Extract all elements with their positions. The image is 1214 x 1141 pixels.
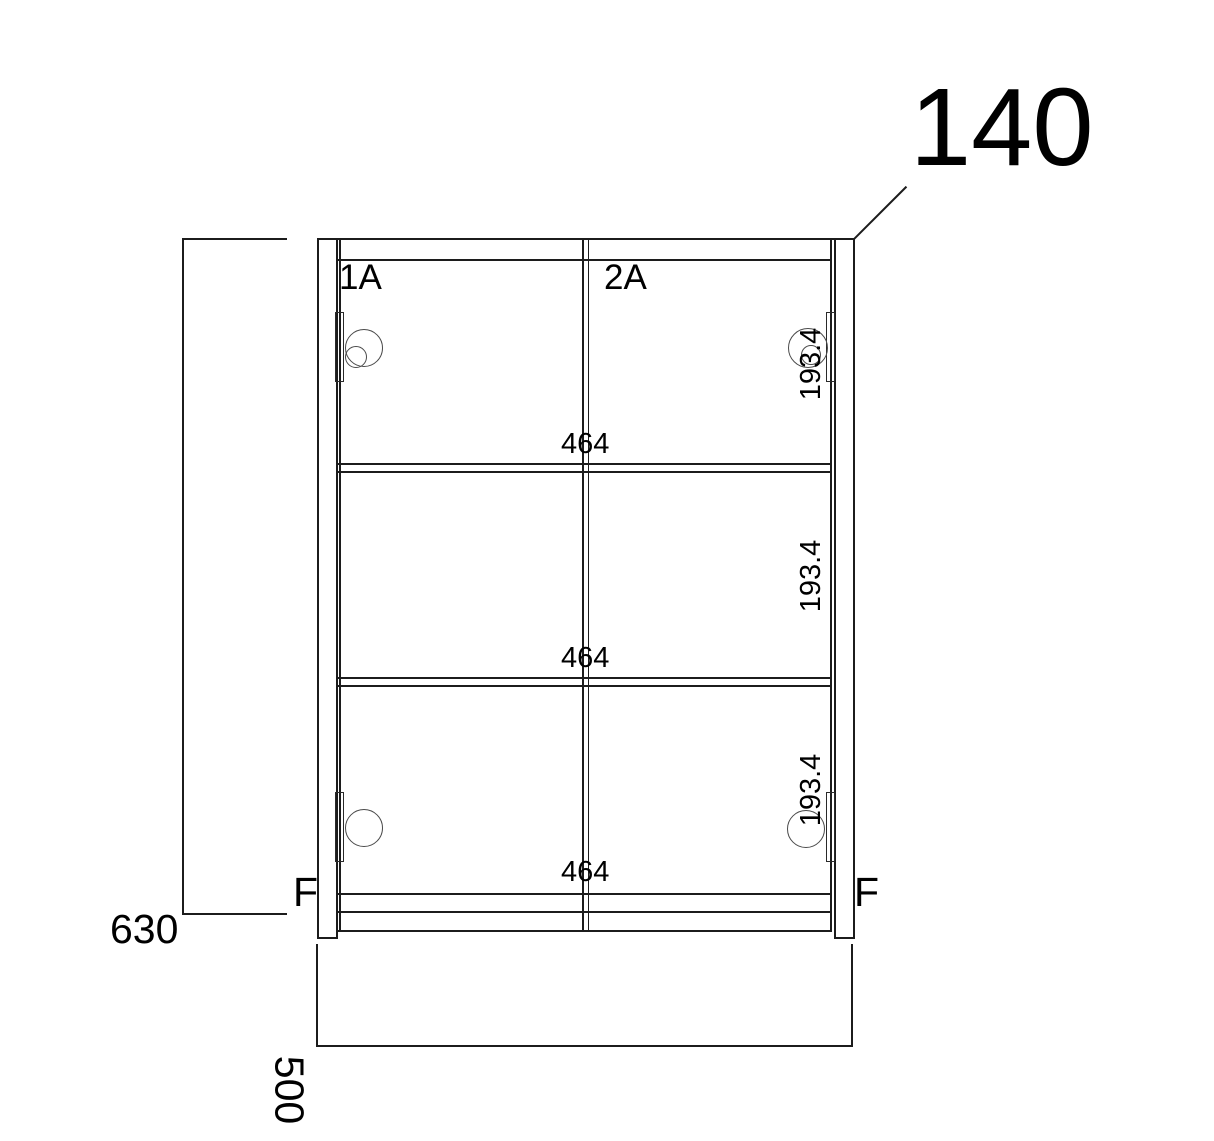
inner-width-dim-bottom: 464 bbox=[561, 857, 607, 887]
fitting-label-left: F bbox=[293, 871, 318, 914]
inner-width-dim-middle: 464 bbox=[561, 643, 607, 673]
fitting-label-right: F bbox=[854, 871, 879, 914]
depth-dim-label: 500 bbox=[267, 1056, 310, 1124]
bottom-board-lower-line bbox=[338, 911, 830, 913]
section-height-dim-middle: 193.4 bbox=[796, 540, 826, 613]
door-label-1a: 1A bbox=[339, 260, 382, 297]
bottom-board-top-line bbox=[338, 893, 830, 895]
center-divider-line-left bbox=[582, 238, 584, 932]
hinge-cup-circle-top-left-small bbox=[345, 346, 367, 368]
center-divider-line-right bbox=[588, 238, 590, 932]
top-rail-inner-line bbox=[338, 259, 831, 261]
shelf-1-top-line bbox=[338, 463, 830, 465]
hinge-plate-bottom-left bbox=[335, 792, 344, 862]
door-label-2a: 2A bbox=[604, 260, 647, 297]
cabinet-top-edge-line bbox=[317, 238, 855, 240]
thickness-dim-label: 140 bbox=[910, 70, 1094, 186]
shelf-2-bottom-line bbox=[338, 685, 830, 687]
depth-dim-ext-right bbox=[851, 944, 853, 1046]
section-height-dim-top: 193.4 bbox=[796, 328, 826, 401]
right-side-panel bbox=[834, 238, 855, 939]
height-dim-ext-top bbox=[182, 238, 287, 240]
cad-drawing-viewport: 630 1A 2A 464 464 464 193.4 193.4 193.4 … bbox=[0, 0, 1214, 1141]
hinge-plate-top-left bbox=[335, 312, 344, 382]
depth-dim-line bbox=[316, 1045, 853, 1047]
hinge-plate-bottom-right bbox=[826, 792, 835, 862]
inner-width-dim-top: 464 bbox=[561, 429, 607, 459]
depth-dim-ext-left bbox=[316, 944, 318, 1046]
section-height-dim-bottom: 193.4 bbox=[796, 754, 826, 827]
shelf-2-top-line bbox=[338, 677, 830, 679]
overall-height-dim-label: 630 bbox=[110, 908, 178, 951]
thickness-leader-line bbox=[853, 186, 906, 239]
hinge-cup-circle-bottom-left bbox=[345, 809, 383, 847]
door-bottom-edge-line bbox=[338, 930, 830, 932]
height-dim-line bbox=[182, 239, 184, 914]
shelf-1-bottom-line bbox=[338, 471, 830, 473]
height-dim-ext-bottom bbox=[182, 913, 287, 915]
